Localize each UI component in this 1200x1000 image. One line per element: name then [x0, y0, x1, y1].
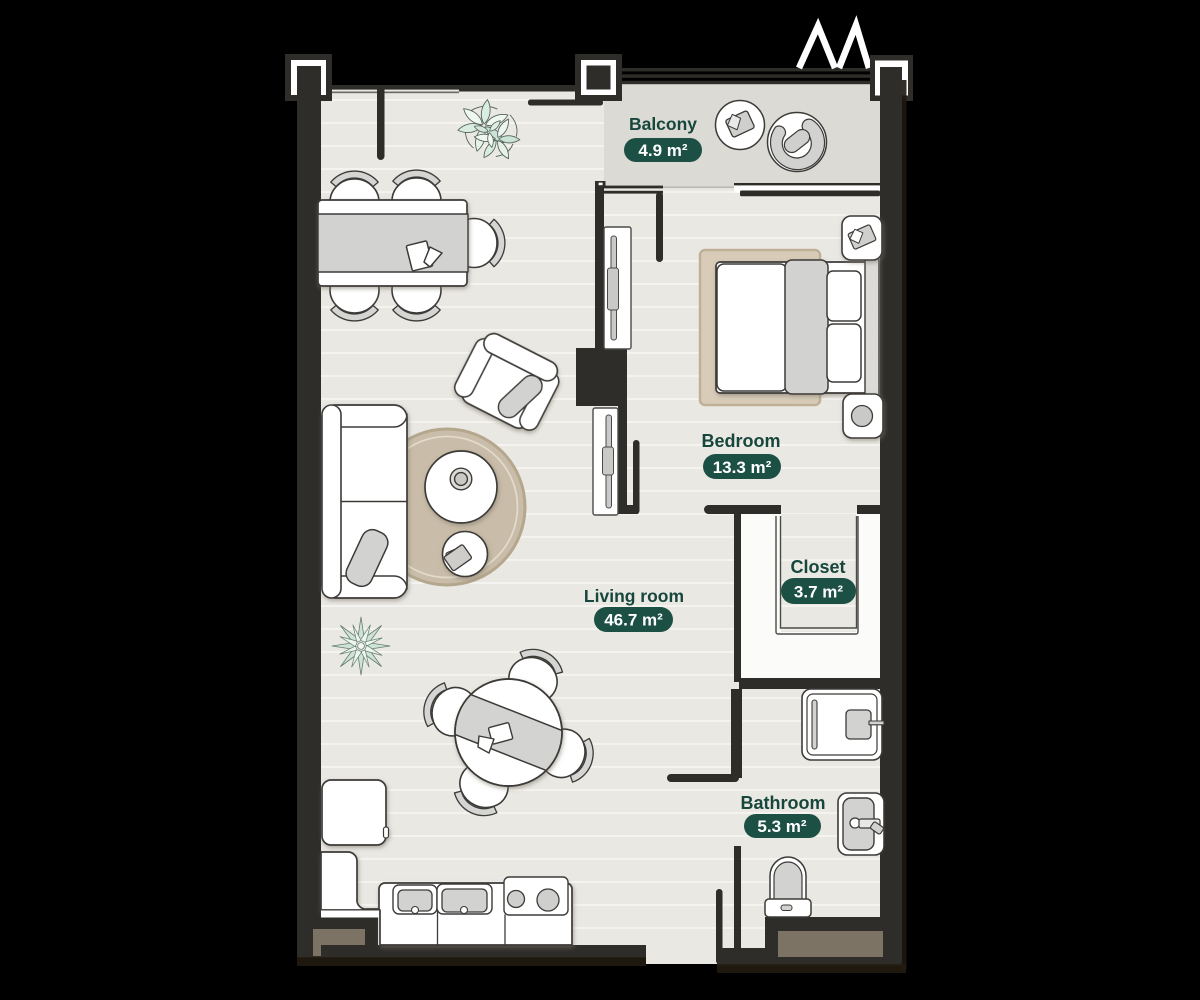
svg-text:46.7 m²: 46.7 m²: [604, 611, 663, 630]
svg-text:Bathroom: Bathroom: [741, 793, 826, 813]
svg-text:Balcony: Balcony: [629, 114, 697, 134]
svg-text:4.9 m²: 4.9 m²: [638, 141, 687, 160]
svg-text:Closet: Closet: [790, 557, 845, 577]
svg-text:Bedroom: Bedroom: [701, 431, 780, 451]
svg-text:3.7 m²: 3.7 m²: [794, 583, 843, 602]
svg-text:Living room: Living room: [584, 586, 684, 606]
svg-text:5.3 m²: 5.3 m²: [757, 817, 806, 836]
svg-text:13.3 m²: 13.3 m²: [713, 458, 772, 477]
